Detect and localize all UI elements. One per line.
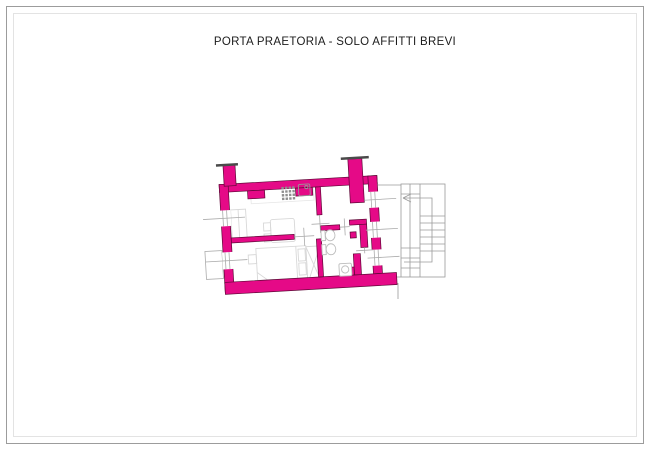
- nightstand: [248, 255, 257, 264]
- hallway-corner-wall: [360, 224, 368, 247]
- door-bathroom: [339, 218, 350, 236]
- stair-steps: [401, 194, 445, 268]
- bed: [256, 246, 308, 281]
- window-right-2: [365, 220, 398, 238]
- partition-hall: [315, 187, 322, 215]
- plan-sheet: PORTA PRAETORIA - SOLO AFFITTI BREVI: [0, 0, 650, 450]
- wall-bottom: [225, 273, 397, 295]
- apartment-plan: [200, 154, 401, 295]
- pilaster-1: [247, 190, 264, 199]
- pier: [350, 232, 356, 238]
- furniture: [229, 181, 322, 288]
- entry-door-right: [367, 248, 400, 266]
- toilet-icon: [321, 229, 335, 241]
- window-right-1: [364, 190, 397, 208]
- bidet-icon: [322, 243, 336, 255]
- wardrobe: [231, 209, 248, 240]
- washbasin-icon: [339, 263, 352, 276]
- floor-plan-canvas: [0, 0, 650, 450]
- door-hall-rear: [356, 247, 373, 254]
- door-bedroom: [294, 227, 315, 246]
- chimney-left: [216, 163, 239, 187]
